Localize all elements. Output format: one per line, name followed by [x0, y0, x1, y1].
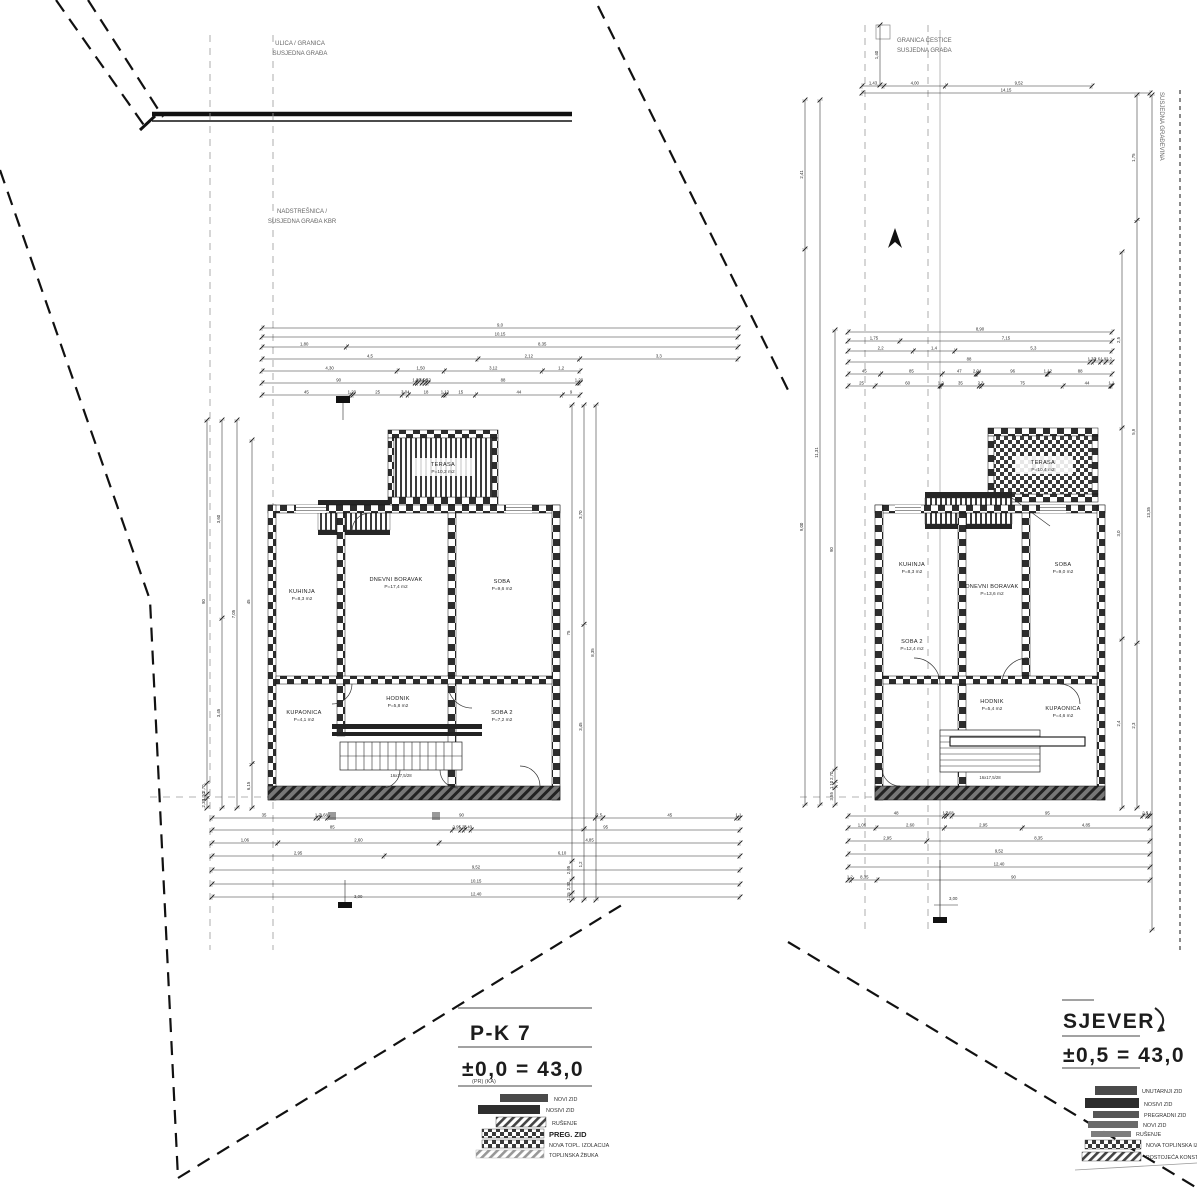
- legend-label: RUŠENJE: [1136, 1131, 1162, 1138]
- dim-label: 85: [330, 824, 335, 829]
- section-markers-right: 3,00: [933, 860, 958, 923]
- room-name: DNEVNI BORAVAK: [369, 577, 422, 583]
- dim-label: 7,15: [1002, 335, 1011, 340]
- legend-label: NOVA TOPL. IZOLACIJA: [549, 1143, 610, 1149]
- dim-label: 88: [967, 356, 972, 361]
- room-area: P=4,6 m2: [1053, 713, 1074, 719]
- wall-west: [875, 505, 883, 800]
- dim-label: 3,0: [1116, 530, 1121, 537]
- dim-label: 35: [958, 380, 963, 385]
- room-area: P=17,4 m2: [384, 584, 408, 590]
- dim-label: 8,35: [1034, 835, 1043, 840]
- site-label: NADSTREŠNICA /: [277, 208, 327, 215]
- dim-label: 4,00: [911, 80, 920, 85]
- dim-label: 48: [894, 810, 899, 815]
- dim-label: 95: [1045, 810, 1050, 815]
- stairs-note: 16x17,5/28: [390, 773, 412, 778]
- dim-label: 8,35: [538, 341, 547, 346]
- dim-label: 2,95: [979, 822, 988, 827]
- site-label: SUSJEDNA GRAĐA: [897, 48, 952, 54]
- terrace-name: TERASA: [1031, 460, 1055, 466]
- dim-label: 2,5: [1116, 336, 1121, 343]
- title-line2: ±0,5 = 43,0: [1063, 1044, 1185, 1067]
- dim-label: 1,75: [1131, 153, 1136, 162]
- dim-label: 8,35: [860, 874, 869, 879]
- dim-label: 1,15: [566, 892, 571, 901]
- wall-west: [268, 505, 276, 800]
- dim-label: 2,60: [354, 837, 363, 842]
- dim-label: 25: [375, 389, 380, 394]
- dim-label: 45: [862, 368, 867, 373]
- legend-swatch: [1095, 1086, 1137, 1095]
- title-line1: P-K 7: [470, 1022, 531, 1045]
- dim-label: 1,2: [578, 861, 583, 868]
- dim-label: 3,45: [216, 708, 221, 717]
- wall-south: [268, 786, 560, 800]
- north-swirl-head-icon: [1157, 1024, 1165, 1032]
- porch-band-bottom: [318, 530, 390, 535]
- room-area: P=9,6 m2: [492, 586, 513, 592]
- dim-label: 1,20: [348, 389, 357, 394]
- dim-label: 4,5: [367, 353, 374, 358]
- dim-label: 2,35: [201, 798, 206, 807]
- terrace-area: P=10,4 m2: [1031, 467, 1055, 473]
- porch-band-top: [925, 492, 1012, 498]
- dim-label: 2,2: [878, 345, 885, 350]
- beam-2: [332, 732, 482, 736]
- dim-label: 95: [603, 824, 608, 829]
- dim-label: 2,3: [1131, 722, 1136, 729]
- room-name: KUPAONICA: [286, 710, 321, 716]
- terrace-name: TERASA: [431, 462, 455, 468]
- legend-swatch: [1085, 1098, 1139, 1108]
- terrace-wall-top: [988, 428, 1098, 436]
- dim-label: 3,04: [401, 389, 410, 394]
- dim-label: 4,85: [585, 837, 594, 842]
- dim-label: 8,90: [976, 326, 985, 331]
- dim-label: 85: [909, 368, 914, 373]
- dim-label: 2,95: [883, 835, 892, 840]
- terrace-wall-right: [1092, 436, 1098, 494]
- dim-label: 90: [336, 377, 341, 382]
- dim-label: 2,40: [464, 824, 473, 829]
- room-labels-left: KUHINJA P=8,3 m2 DNEVNI BORAVAK P=17,4 m…: [286, 577, 512, 723]
- wall-east: [1097, 505, 1105, 800]
- legend-swatch: [478, 1105, 540, 1114]
- dim-label: 6,15: [246, 781, 251, 790]
- legend-swatch: [1088, 1121, 1138, 1128]
- dim-label: 2,68: [319, 812, 328, 817]
- legend-left: NOVI ZID NOSIVI ZID RUŠENJE PREG. ZID NO…: [476, 1094, 610, 1159]
- dim-label: 3,55: [829, 792, 834, 801]
- dim-label: 9: [570, 389, 573, 394]
- landing-bar: [950, 737, 1085, 746]
- dim-label: 5,9: [1131, 428, 1136, 435]
- dim-label: 88: [1078, 368, 1083, 373]
- room-name: KUPAONICA: [1045, 706, 1080, 712]
- dim-label: 1,12: [441, 389, 450, 394]
- room-area: P=7,2 m2: [492, 717, 513, 723]
- legend-label: NOSIVI ZID: [1144, 1102, 1173, 1108]
- room-name: KUHINJA: [289, 589, 315, 595]
- dim-label: 4,85: [1082, 822, 1091, 827]
- architectural-sheet: ULICA / GRANICA SUSJEDNA GRAĐA NADSTREŠN…: [0, 0, 1197, 1200]
- north-arrow-icon: [888, 228, 902, 248]
- legend-swatch: [1082, 1152, 1141, 1161]
- dim-label: 13,35: [1146, 507, 1151, 518]
- dim-label: 2,2: [1106, 356, 1113, 361]
- dim-label: 6,10: [558, 850, 567, 855]
- dim-label: 3,45: [578, 722, 583, 731]
- dim-label: 1,43: [869, 80, 878, 85]
- dim-label: 3,60: [216, 514, 221, 523]
- dim-label: 2,70: [201, 784, 206, 793]
- title-block-right: SJEVER ±0,5 = 43,0: [1062, 1000, 1185, 1068]
- dim-label: 2,3: [978, 380, 985, 385]
- porch-band-bottom: [925, 524, 1012, 529]
- terrace-wall-left: [988, 436, 994, 494]
- title-line1: SJEVER: [1063, 1010, 1155, 1033]
- left-floor-plan: TERASA P=10,2 m2: [268, 396, 560, 908]
- room-area: P=8,3 m2: [292, 596, 313, 602]
- dim-label: 1,2: [938, 380, 945, 385]
- dim-label: 1,1: [735, 812, 742, 817]
- site-label: SUSJEDNA GRAĐA: [273, 51, 328, 57]
- wall-interior-v1: [337, 513, 345, 736]
- terrace-wall-top: [388, 430, 498, 438]
- dim-label: 35: [262, 812, 267, 817]
- dim-label: 1,06: [858, 822, 867, 827]
- legend-label: RUŠENJE: [552, 1120, 578, 1127]
- legend-swatch: [482, 1129, 544, 1138]
- site-labels: ULICA / GRANICA SUSJEDNA GRAĐA NADSTREŠN…: [268, 37, 1164, 225]
- dim-label: 2,5: [596, 812, 603, 817]
- wall-interior-h1: [883, 676, 1097, 684]
- wall-interior-h1: [276, 676, 552, 684]
- room-area: P=13,6 m2: [980, 591, 1004, 597]
- benchmark-label: 3,00: [354, 894, 363, 899]
- dim-label: 3,12: [489, 365, 498, 370]
- legend-swatch: [1085, 1140, 1141, 1149]
- dim-label: 75: [566, 630, 571, 635]
- dim-label: 1,40: [874, 50, 879, 59]
- site-label: SUSJEDNA GRAĐA KBR: [268, 219, 337, 225]
- dim-label: 12,40: [471, 891, 482, 896]
- dim-label: 8,35: [590, 648, 595, 657]
- room-area: P=9,0 m2: [1053, 569, 1074, 575]
- dim-label: 45: [246, 599, 251, 604]
- dim-label: 2,04: [973, 368, 982, 373]
- room-area: P=12,4 m2: [900, 646, 924, 652]
- legend-swatch: [482, 1140, 544, 1148]
- dim-label: 1,2: [558, 365, 565, 370]
- legend-label: NOVI ZID: [1143, 1123, 1166, 1129]
- legend-label: POSTOJEĆA KONSTRUKCIJA: [1146, 1154, 1197, 1161]
- dim-label: 1,20: [575, 377, 584, 382]
- dim-label: 75: [1020, 380, 1025, 385]
- room-name: KUHINJA: [899, 562, 925, 568]
- dim-label: 2,4: [1116, 720, 1121, 727]
- legend-label: NOVI ZID: [554, 1097, 577, 1103]
- room-name: SOBA: [1055, 562, 1072, 568]
- dim-label: 90: [201, 599, 206, 604]
- corner-line: [1075, 1163, 1197, 1170]
- stairs: 16x17,5/28: [340, 742, 462, 778]
- title-block-left: P-K 7 ±0,0 = 43,0 (PR) (KA): [458, 1008, 592, 1086]
- dim-label: 2,30: [566, 881, 571, 890]
- dim-label: 9,52: [1015, 80, 1024, 85]
- dim-label: 90: [829, 547, 834, 552]
- wall-east: [552, 505, 560, 800]
- dim-label: 90: [459, 812, 464, 817]
- dim-label: 11,31: [814, 447, 819, 458]
- dim-label: 25: [859, 380, 864, 385]
- boundary-center-diagonal: [598, 6, 790, 394]
- dim-label: 1,06: [241, 837, 250, 842]
- dim-label: 18: [424, 389, 429, 394]
- site-label: ULICA / GRANICA: [275, 41, 325, 47]
- dim-label: 44: [1085, 380, 1090, 385]
- dim-label: 45: [304, 389, 309, 394]
- dim-label: 14,15: [1001, 87, 1012, 92]
- room-name: SOBA 2: [491, 710, 513, 716]
- dim-label: 2,95: [294, 850, 303, 855]
- site-label: GRANICA ČESTICE: [897, 37, 952, 44]
- legend-swatch: [496, 1117, 546, 1127]
- room-name: HODNIK: [980, 699, 1004, 705]
- boundary-diagonal-nw-2: [56, 0, 148, 131]
- legend-swatch: [500, 1094, 548, 1102]
- wall-interior-v2: [1022, 513, 1030, 676]
- dim-label: 2,95: [566, 865, 571, 874]
- dim-label: 2,68: [945, 810, 954, 815]
- boundary-lines: [0, 0, 1197, 1188]
- terrace-area: P=10,2 m2: [431, 469, 455, 475]
- dim-label: 90: [1011, 874, 1016, 879]
- legend-label: NOSIVI ZID: [546, 1108, 575, 1114]
- legend-label: UNUTARNJI ZID: [1142, 1089, 1182, 1095]
- dim-label: 3,70: [578, 510, 583, 519]
- dim-label: 7,05: [231, 609, 236, 618]
- dim-label: 1,1: [1146, 810, 1153, 815]
- dim-label: 88: [501, 377, 506, 382]
- terrace-wall-bottom: [388, 497, 498, 505]
- terrace-wall-right: [492, 438, 498, 497]
- dim-label: 1,75: [870, 335, 879, 340]
- legend-swatch: [1091, 1131, 1131, 1137]
- dim-label: 1,52: [423, 377, 432, 382]
- legend-label: PREG. ZID: [549, 1130, 587, 1139]
- title-line2: ±0,0 = 43,0: [462, 1058, 584, 1081]
- dim-label: 1,2: [847, 874, 854, 879]
- dim-label: 1,10: [829, 780, 834, 789]
- site-label-rotated: SUSJEDNA GRAĐEVINA: [1158, 92, 1164, 161]
- dim-label: 4,30: [325, 365, 334, 370]
- legend-swatch: [476, 1150, 544, 1158]
- dim-label: 44: [517, 389, 522, 394]
- boundary-west: [0, 170, 178, 1178]
- legend-label: TOPLINSKA ŽBUKA: [549, 1151, 599, 1159]
- dim-label: 1,12: [1044, 368, 1053, 373]
- wall-south: [875, 786, 1105, 800]
- dim-label: 5,3: [1030, 345, 1037, 350]
- dim-label: 10,15: [471, 878, 482, 883]
- dim-label: 10,15: [495, 331, 506, 336]
- dim-label: 1,4: [931, 345, 938, 350]
- room-name: DNEVNI BORAVAK: [965, 584, 1018, 590]
- beam-1: [332, 724, 482, 729]
- dim-label: 3,3: [656, 353, 663, 358]
- room-name: HODNIK: [386, 696, 410, 702]
- room-name: SOBA: [494, 579, 511, 585]
- legend-label: NOVA TOPLINSKA IZOLACIJA: [1146, 1143, 1197, 1149]
- legend-right: UNUTARNJI ZID NOSIVI ZID PREGRADNI ZID N…: [1082, 1086, 1197, 1161]
- benchmark-label: 3,00: [949, 896, 958, 901]
- title-sub: (PR) (KA): [472, 1079, 496, 1085]
- dim-label: 96: [1010, 368, 1015, 373]
- room-labels-right: KUHINJA P=8,3 m2 DNEVNI BORAVAK P=13,6 m…: [899, 562, 1081, 719]
- dim-label: 12,40: [994, 861, 1005, 866]
- dim-label: 9,00: [799, 522, 804, 531]
- room-area: P=4,1 m2: [294, 717, 315, 723]
- dim-label: 2,70: [829, 771, 834, 780]
- terrace-wall-left: [388, 438, 394, 497]
- room-area: P=5,8 m2: [388, 703, 409, 709]
- room-area: P=8,3 m2: [902, 569, 923, 575]
- dim-label: 45: [667, 812, 672, 817]
- room-name: SOBA 2: [901, 639, 923, 645]
- dim-label: 9,52: [472, 864, 481, 869]
- dim-label: 47: [957, 368, 962, 373]
- dim-label: 1,1: [1108, 380, 1115, 385]
- dim-label: 9,52: [995, 848, 1004, 853]
- dim-label: 15: [458, 389, 463, 394]
- dim-label: 2,60: [906, 822, 915, 827]
- dim-label: 1,50: [416, 365, 425, 370]
- legend-swatch: [1093, 1111, 1139, 1118]
- dim-label: 9,0: [497, 322, 504, 327]
- stairs-note: 16x17,5/28: [979, 775, 1001, 780]
- room-area: P=5,4 m2: [982, 706, 1003, 712]
- dim-label: 1,80: [300, 341, 309, 346]
- legend-label: PREGRADNI ZID: [1144, 1113, 1186, 1119]
- dim-label: 2,41: [799, 170, 804, 179]
- dim-label: 60: [905, 380, 910, 385]
- dim-label: 2,12: [525, 353, 534, 358]
